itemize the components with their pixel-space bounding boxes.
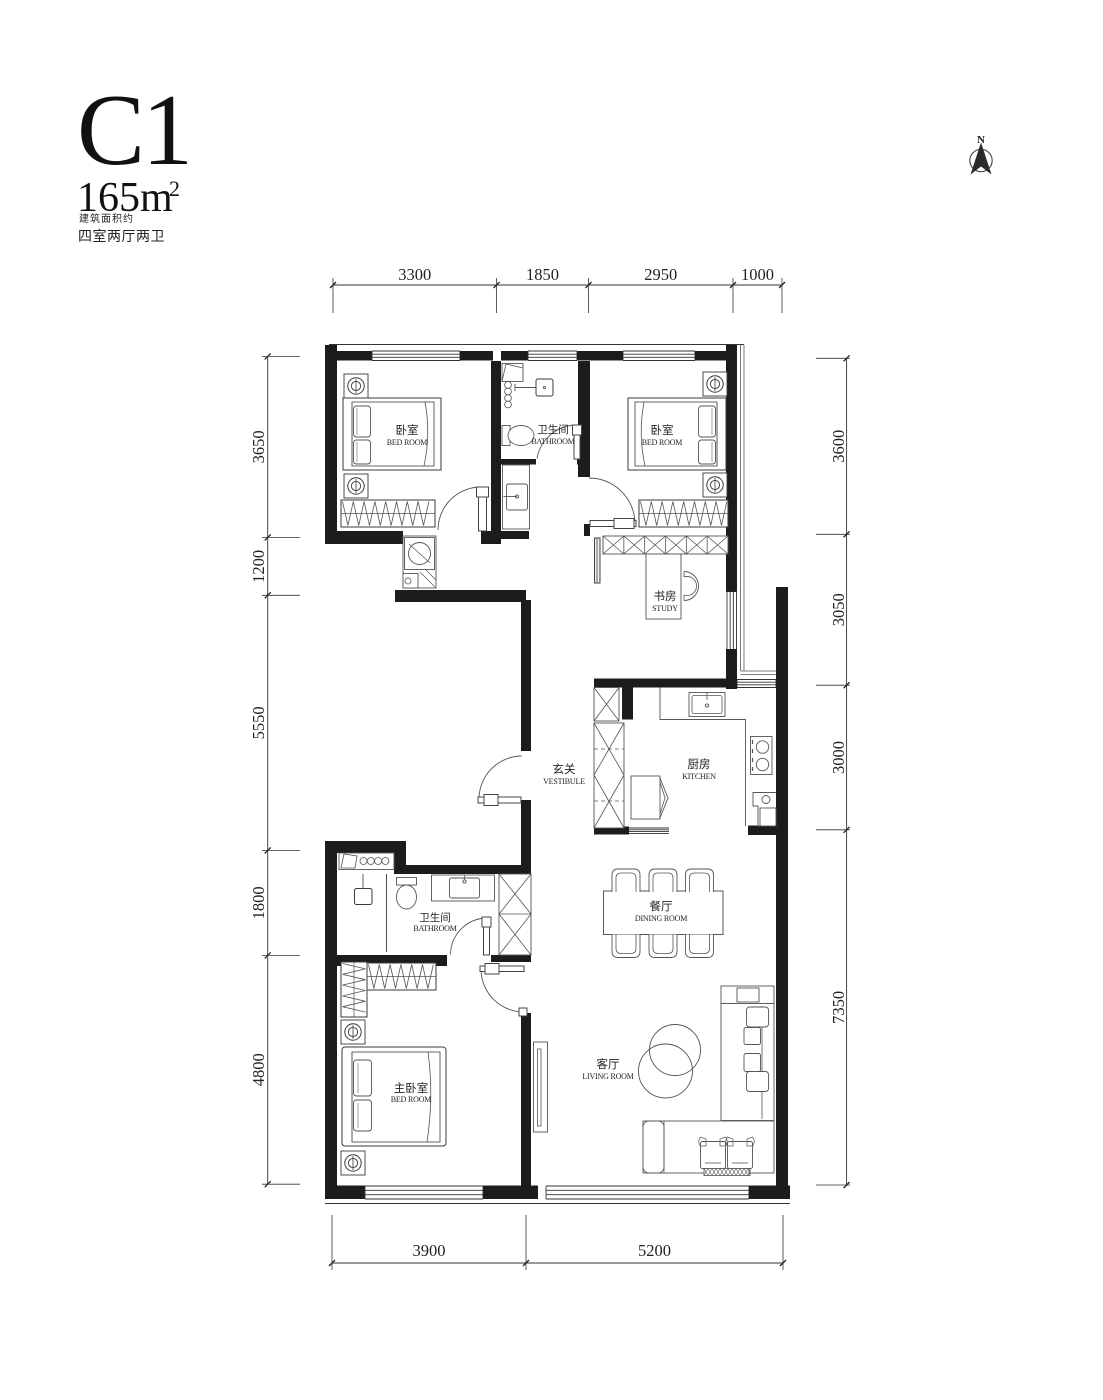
- svg-text:四室两厅两卫: 四室两厅两卫: [78, 228, 165, 245]
- svg-text:BATHROOM: BATHROOM: [413, 924, 456, 933]
- svg-text:VESTIBULE: VESTIBULE: [543, 777, 585, 786]
- svg-text:2: 2: [169, 176, 180, 201]
- svg-text:5200: 5200: [638, 1241, 671, 1260]
- svg-text:5550: 5550: [249, 706, 268, 739]
- svg-text:3900: 3900: [413, 1241, 446, 1260]
- svg-text:厨房: 厨房: [688, 758, 711, 771]
- svg-text:卫生间: 卫生间: [419, 911, 451, 924]
- svg-text:卧室: 卧室: [396, 423, 419, 437]
- svg-text:LIVING ROOM: LIVING ROOM: [582, 1072, 633, 1081]
- svg-text:STUDY: STUDY: [652, 604, 678, 613]
- svg-text:3000: 3000: [829, 741, 848, 774]
- svg-text:1800: 1800: [249, 886, 268, 919]
- svg-text:BED ROOM: BED ROOM: [642, 438, 682, 447]
- svg-text:1200: 1200: [249, 550, 268, 583]
- svg-text:DINING ROOM: DINING ROOM: [635, 914, 687, 923]
- svg-text:卧室: 卧室: [651, 423, 674, 437]
- svg-text:餐厅: 餐厅: [650, 899, 673, 913]
- svg-text:BED ROOM: BED ROOM: [391, 1095, 431, 1104]
- svg-text:4800: 4800: [249, 1053, 268, 1086]
- svg-text:BATHROOM: BATHROOM: [531, 437, 574, 446]
- svg-text:1000: 1000: [741, 265, 774, 284]
- svg-text:7350: 7350: [829, 991, 848, 1024]
- svg-text:客厅: 客厅: [597, 1057, 620, 1071]
- svg-text:C1: C1: [77, 74, 190, 187]
- svg-text:卫生间: 卫生间: [537, 423, 569, 436]
- svg-text:2950: 2950: [644, 265, 677, 284]
- svg-text:3300: 3300: [398, 265, 431, 284]
- svg-text:BED ROOM: BED ROOM: [387, 438, 427, 447]
- svg-text:玄关: 玄关: [553, 762, 576, 776]
- svg-text:书房: 书房: [654, 590, 677, 603]
- svg-text:3650: 3650: [249, 430, 268, 463]
- svg-text:3600: 3600: [829, 430, 848, 463]
- svg-text:主卧室: 主卧室: [394, 1081, 429, 1095]
- svg-text:1850: 1850: [526, 265, 559, 284]
- svg-text:3050: 3050: [829, 593, 848, 626]
- svg-text:KITCHEN: KITCHEN: [682, 772, 716, 781]
- svg-text:建筑面积约: 建筑面积约: [79, 212, 134, 225]
